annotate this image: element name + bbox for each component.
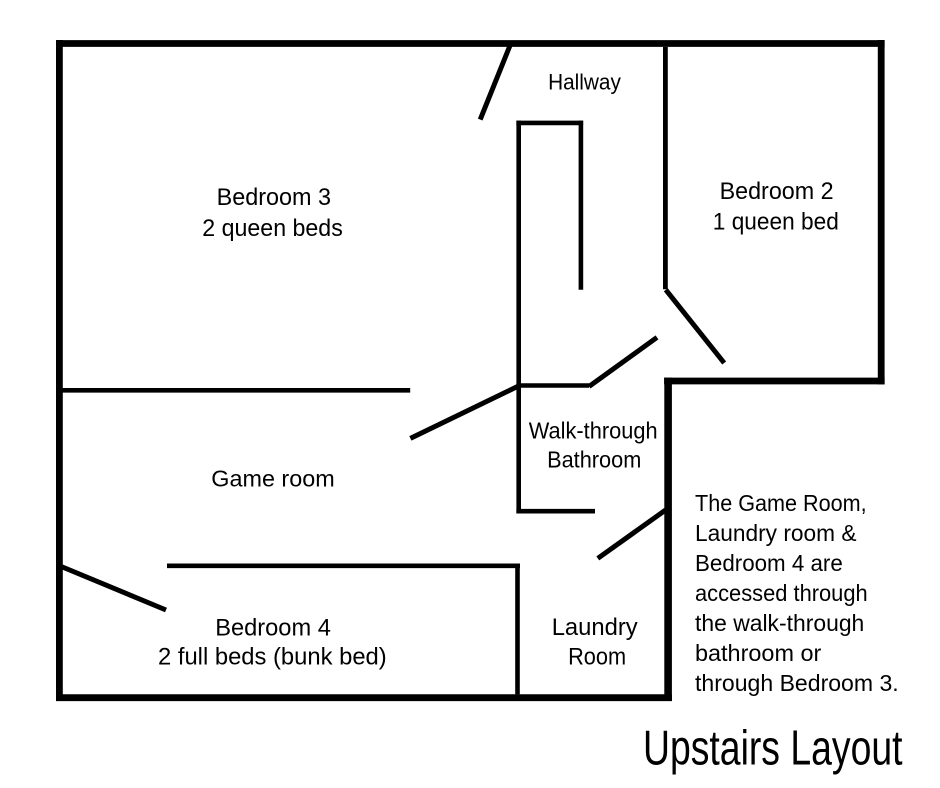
svg-text:The Game Room,: The Game Room, [695,490,867,516]
svg-text:2 full beds (bunk bed): 2 full beds (bunk bed) [158,644,387,671]
svg-text:Laundry: Laundry [552,614,638,641]
svg-text:Hallway: Hallway [548,69,621,94]
svg-text:Room: Room [568,644,626,671]
svg-text:Bedroom 3: Bedroom 3 [217,184,331,211]
svg-text:Bathroom: Bathroom [547,447,641,473]
svg-text:bathroom or: bathroom or [695,640,822,666]
svg-text:Bedroom 4 are: Bedroom 4 are [695,550,843,576]
svg-text:2 queen beds: 2 queen beds [202,215,342,242]
svg-text:the walk-through: the walk-through [695,610,864,636]
svg-text:Bedroom 2: Bedroom 2 [720,178,834,205]
svg-text:Upstairs Layout: Upstairs Layout [643,722,903,776]
svg-text:through Bedroom 3.: through Bedroom 3. [695,670,899,696]
svg-text:Game room: Game room [211,466,334,492]
svg-text:Laundry room &: Laundry room & [695,520,857,546]
svg-text:Walk-through: Walk-through [529,418,658,444]
svg-text:Bedroom 4: Bedroom 4 [215,614,331,641]
svg-text:1 queen bed: 1 queen bed [713,209,839,236]
svg-text:accessed through: accessed through [695,580,868,606]
